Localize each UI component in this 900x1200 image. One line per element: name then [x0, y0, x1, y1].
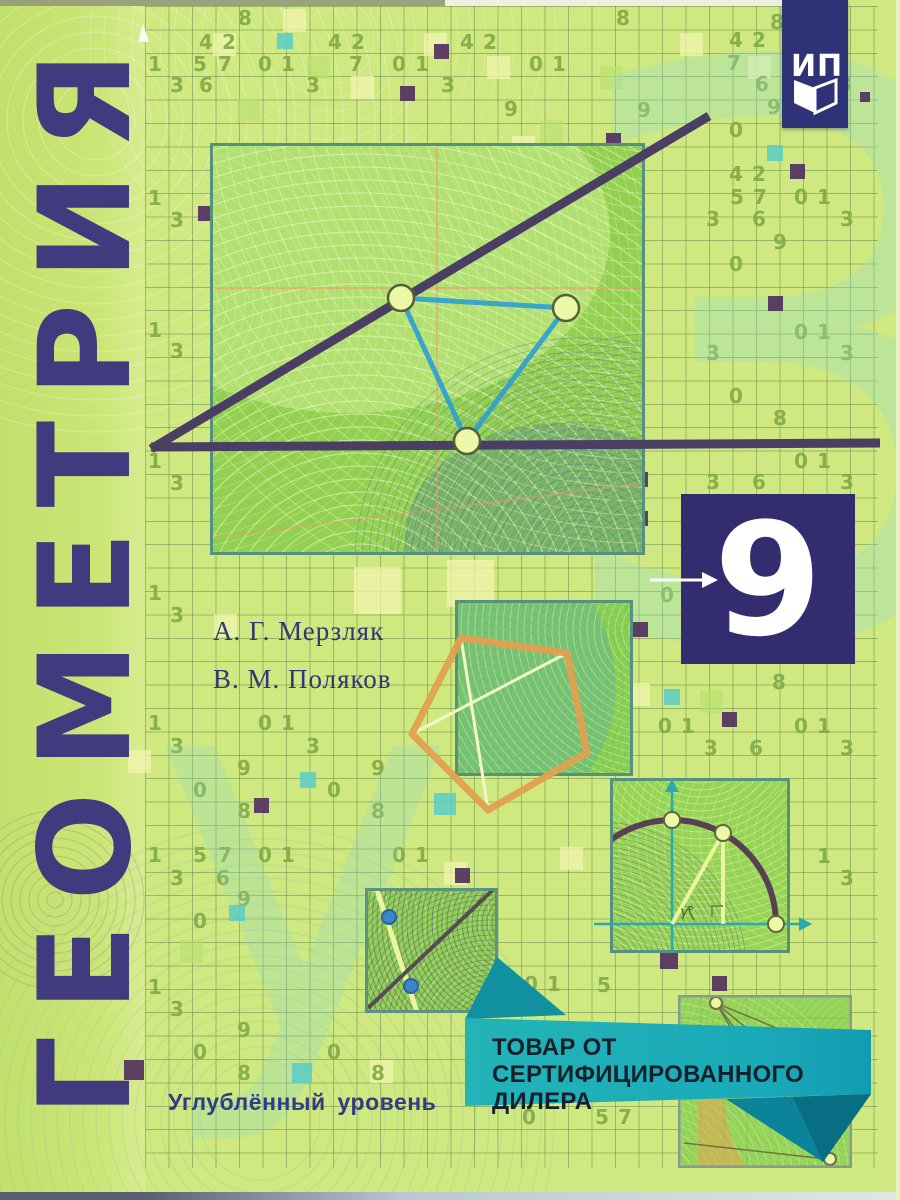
level-text: Углублённый уровень: [168, 1089, 436, 1116]
purple-square-mark: [254, 798, 269, 813]
grade-number: 9: [681, 494, 855, 666]
teal-square-mark: [277, 33, 293, 49]
photo-edge-bottom: [0, 1192, 900, 1200]
ribbon-line-2: СЕРТИФИЦИРОВАННОГО ДИЛЕРА: [492, 1061, 900, 1115]
cover-title: ГЕОМЕТРИЯ: [11, 28, 159, 1117]
photo-edge-right: [896, 0, 900, 1200]
diagonal-figure-square: [365, 888, 498, 1013]
ribbon-text: ТОВАР ОТ СЕРТИФИЦИРОВАННОГО ДИЛЕРА: [492, 1034, 900, 1115]
publisher-logo: И П: [782, 0, 848, 128]
teal-square-mark: [300, 772, 316, 788]
purple-square-mark: [455, 868, 470, 883]
arc-figure-square: [610, 778, 790, 953]
authors-block: А. Г. Мерзляк В. М. Поляков: [213, 616, 392, 712]
purple-square-mark: [860, 92, 870, 102]
author-name: А. Г. Мерзляк: [213, 616, 392, 664]
teal-square-mark: [229, 905, 245, 921]
pentagon-figure-square: [455, 600, 633, 776]
photo-edge-top-right: [445, 0, 782, 6]
author-name: В. М. Поляков: [213, 664, 392, 712]
purple-square-mark: [768, 296, 783, 311]
teal-square-mark: [767, 145, 783, 161]
publisher-letter-i: И: [791, 49, 816, 84]
purple-square-mark: [400, 86, 415, 101]
purple-square-mark: [633, 622, 648, 637]
book-cover: 8884242424215701701017013633639990134257…: [0, 0, 900, 1200]
main-figure-square: [210, 143, 645, 555]
logo-book-left: [794, 80, 815, 113]
ribbon-line-1: ТОВАР ОТ: [492, 1034, 900, 1061]
teal-square-mark: [292, 1063, 312, 1083]
teal-square-mark: [434, 793, 456, 815]
purple-square-mark: [790, 164, 805, 179]
purple-square-mark: [434, 44, 449, 59]
grade-badge: 9: [681, 494, 855, 664]
publisher-letter-p: П: [817, 49, 842, 84]
logo-book-right: [815, 80, 836, 113]
purple-square-mark: [712, 976, 727, 991]
purple-square-mark: [722, 712, 737, 727]
photo-edge-top-left: [0, 0, 445, 6]
teal-square-mark: [664, 689, 680, 705]
purple-square-mark: [660, 951, 678, 969]
